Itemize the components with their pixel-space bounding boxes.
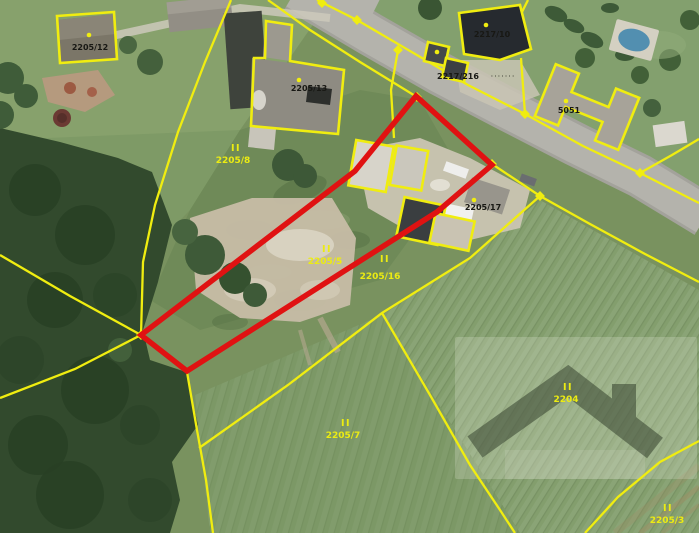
map-viewport[interactable]: II 2205/8 II 2205/5 II 2205/16 II 2205/7… [0, 0, 699, 533]
building-label: 2217/216 [437, 72, 479, 81]
parcel-label: 2204 [553, 395, 578, 405]
parcel-label: 2205/8 [216, 156, 251, 166]
parcel-label: 2205/3 [650, 516, 685, 526]
building-label: 2217/10 [474, 30, 511, 39]
map-canvas[interactable]: II 2205/8 II 2205/5 II 2205/16 II 2205/7… [0, 0, 699, 533]
parcel-label: 2205/5 [308, 257, 343, 267]
farm-building-d [429, 213, 474, 251]
building-label: 5051 [558, 106, 581, 115]
grass-symbol: II [231, 143, 241, 154]
grass-symbol: II [341, 418, 351, 429]
building-label: 2205/17 [465, 203, 501, 212]
house-2205-12-roof [57, 14, 117, 64]
grass-symbol: II [322, 244, 332, 255]
grass-symbol: II [663, 503, 673, 514]
grass-symbol: II [380, 254, 390, 265]
farm-building-b [390, 146, 428, 191]
parcel-label: 2205/7 [326, 431, 361, 441]
building-label: 2205/12 [72, 43, 108, 52]
watermark-house-logo [455, 337, 697, 479]
building-label: 2205/13 [291, 84, 327, 93]
shed [653, 121, 688, 147]
label-leader-dots: ······· [491, 72, 516, 81]
parcel-label: 2205/16 [360, 272, 401, 282]
watermark-chimney [612, 384, 636, 426]
grass-symbol: II [563, 382, 573, 393]
